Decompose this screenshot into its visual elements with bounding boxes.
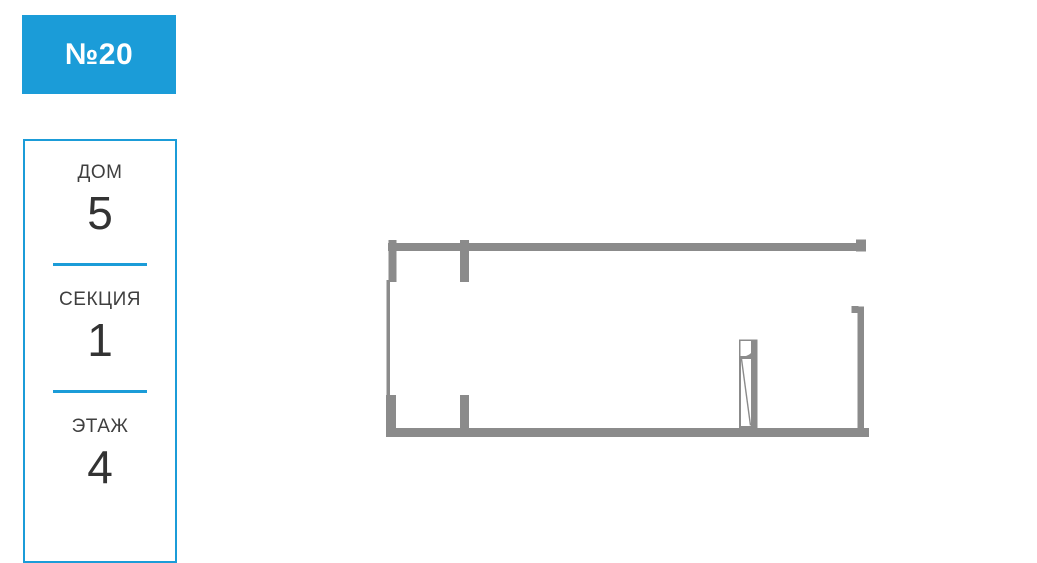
wall-stub-bottom-middle (460, 395, 469, 430)
wall-top (388, 243, 866, 251)
door-leaf (751, 341, 757, 427)
wall-cap-top-right (856, 240, 866, 252)
floorplan (0, 0, 1037, 470)
wall-stub-top-left (389, 240, 397, 282)
wall-right (858, 307, 865, 437)
wall-left-window (387, 280, 391, 397)
wall-stub-top-middle (460, 240, 469, 282)
wall-tick-right-top (852, 306, 859, 313)
